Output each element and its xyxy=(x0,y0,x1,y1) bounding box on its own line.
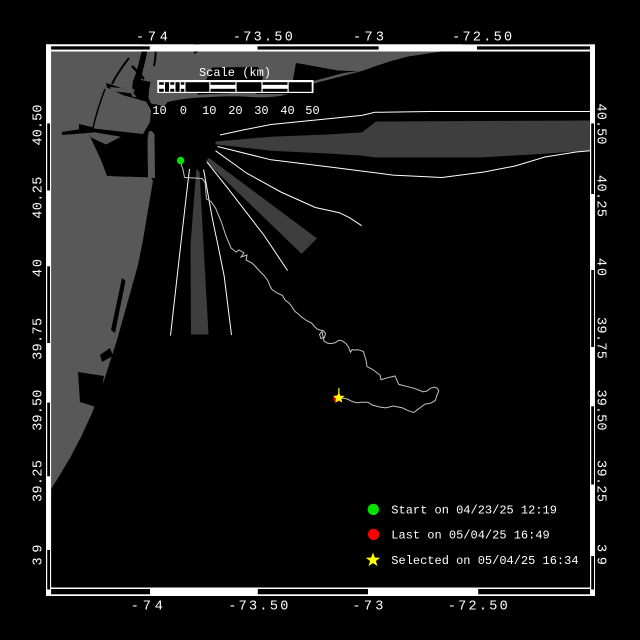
svg-text:Scale (km): Scale (km) xyxy=(199,66,271,80)
svg-text:39.25: 39.25 xyxy=(593,460,608,502)
svg-text:50: 50 xyxy=(305,104,319,118)
svg-text:40.50: 40.50 xyxy=(593,104,608,145)
svg-text:40: 40 xyxy=(32,259,47,277)
svg-text:40: 40 xyxy=(280,104,294,118)
svg-text:39.50: 39.50 xyxy=(593,390,608,431)
svg-text:10: 10 xyxy=(202,104,216,118)
svg-text:Selected on 05/04/25 16:34: Selected on 05/04/25 16:34 xyxy=(391,554,578,568)
svg-text:-74: -74 xyxy=(136,30,168,45)
svg-text:40.25: 40.25 xyxy=(593,175,608,217)
svg-text:39.75: 39.75 xyxy=(593,317,608,359)
svg-text:-74: -74 xyxy=(131,600,163,615)
svg-text:-73: -73 xyxy=(353,30,384,45)
svg-text:10: 10 xyxy=(152,104,166,118)
svg-text:Last on 05/04/25 16:49: Last on 05/04/25 16:49 xyxy=(391,529,549,543)
svg-text:40: 40 xyxy=(593,258,608,276)
svg-text:-73: -73 xyxy=(352,600,383,615)
svg-text:Start on 04/23/25 12:19: Start on 04/23/25 12:19 xyxy=(391,504,557,518)
svg-text:40.50: 40.50 xyxy=(32,105,47,146)
svg-text:30: 30 xyxy=(254,104,268,118)
svg-text:39.25: 39.25 xyxy=(32,460,47,502)
svg-text:20: 20 xyxy=(228,104,242,118)
svg-text:40.25: 40.25 xyxy=(32,177,47,219)
svg-text:39.50: 39.50 xyxy=(32,390,47,431)
svg-text:39.75: 39.75 xyxy=(32,318,47,360)
svg-text:0: 0 xyxy=(180,104,187,118)
